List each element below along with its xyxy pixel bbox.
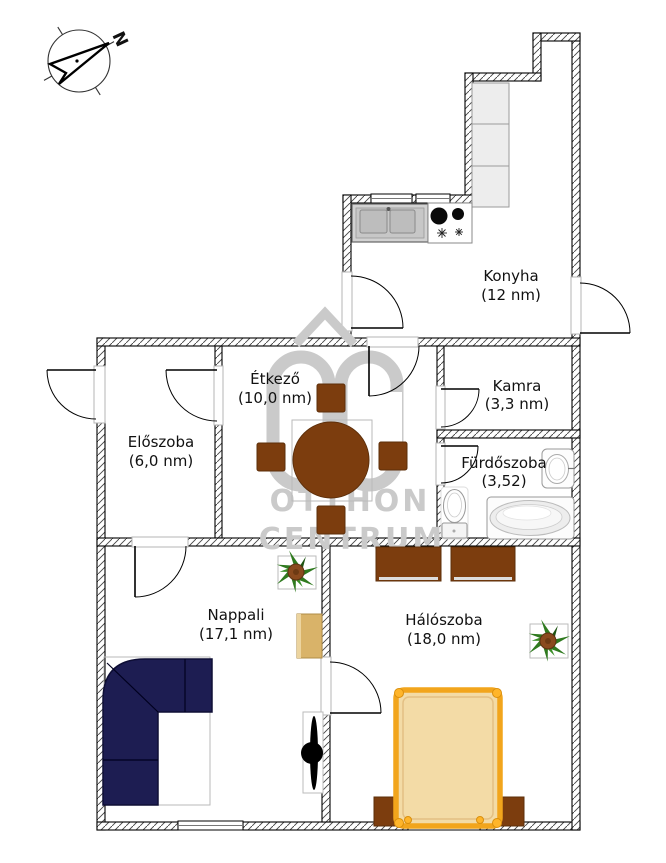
sink-basin <box>390 210 415 233</box>
wall <box>417 338 580 346</box>
wardrobe <box>451 547 515 581</box>
kitchen-side-door <box>351 276 403 328</box>
wall <box>97 338 368 346</box>
wardrobe-detail <box>379 577 438 580</box>
kitchen-cabinets <box>472 83 509 207</box>
chair <box>379 442 407 470</box>
gas-flame-icon <box>455 228 463 236</box>
hall-living-door <box>135 546 186 597</box>
stove <box>428 203 472 243</box>
wall <box>572 33 580 278</box>
plant <box>274 550 318 593</box>
label-etkezo: Étkező <box>250 369 300 388</box>
label-furdoszoba: Fürdőszoba <box>461 454 547 472</box>
entrance-door <box>47 370 96 419</box>
north-arrow-icon <box>50 43 109 84</box>
kitchen-sink <box>352 204 428 242</box>
chair <box>257 443 285 471</box>
bathroom-sink <box>542 449 575 488</box>
chair <box>317 384 345 412</box>
corner-sofa <box>103 659 212 805</box>
sideboard <box>297 614 322 658</box>
wall <box>322 546 330 658</box>
pantry-door <box>441 389 479 427</box>
label-furdoszoba-area: (3,52) <box>481 472 526 490</box>
wall <box>343 195 351 273</box>
label-nappali: Nappali <box>208 606 265 624</box>
label-kamra-area: (3,3 nm) <box>485 395 549 413</box>
door-frame <box>214 366 223 425</box>
compass: N <box>44 27 132 95</box>
wall <box>215 424 222 538</box>
wall <box>97 538 133 546</box>
kitchen-furniture <box>352 83 509 243</box>
plant <box>526 619 570 662</box>
cabinet <box>472 124 509 166</box>
door-frame <box>367 337 418 347</box>
wall <box>412 195 416 203</box>
door-frame <box>132 537 188 547</box>
burner-icon <box>452 208 464 220</box>
door-frame <box>321 657 331 715</box>
door-frame <box>94 366 105 423</box>
toilet <box>441 487 468 539</box>
door-frame <box>342 272 352 331</box>
living-room-furniture <box>103 550 323 805</box>
wall <box>215 346 222 367</box>
compass-north-letter: N <box>107 29 131 50</box>
door-frame <box>571 277 581 334</box>
hall-dining-door <box>166 370 217 421</box>
wardrobe <box>376 547 441 581</box>
window <box>416 194 450 203</box>
burner-icon <box>431 208 448 225</box>
cabinet <box>472 83 509 124</box>
floor-plan-canvas: OTTHON CENTRUM <box>0 0 666 863</box>
wall <box>437 430 580 438</box>
label-kamra: Kamra <box>493 377 542 395</box>
bathtub <box>487 497 574 539</box>
cabinet <box>472 166 509 207</box>
logo-letter-c-gap <box>384 392 402 448</box>
bedroom-furniture <box>374 547 570 828</box>
wardrobe-detail <box>454 577 512 580</box>
label-konyha-area: (12 nm) <box>481 286 541 304</box>
door-frame <box>436 443 445 485</box>
label-konyha: Konyha <box>483 267 538 285</box>
sink-basin <box>360 210 387 233</box>
wall <box>437 346 444 387</box>
wall <box>97 822 178 830</box>
label-nappali-area: (17,1 nm) <box>199 625 273 643</box>
window <box>371 194 412 203</box>
label-haloszoba: Hálószoba <box>405 611 482 629</box>
tv <box>301 712 323 793</box>
kitchen-exterior-door <box>580 283 630 333</box>
chair <box>317 506 345 534</box>
wall <box>572 333 580 830</box>
gas-flame-icon <box>437 228 447 238</box>
bedroom-door <box>330 662 381 713</box>
wall <box>465 73 541 81</box>
dining-table <box>293 422 369 498</box>
label-haloszoba-area: (18,0 nm) <box>407 630 481 648</box>
window <box>178 821 243 830</box>
faucet-icon <box>387 207 391 211</box>
label-eloszoba: Előszoba <box>128 433 194 451</box>
label-etkezo-area: (10,0 nm) <box>238 389 312 407</box>
door-frame <box>436 386 445 429</box>
bed <box>395 689 502 828</box>
label-eloszoba-area: (6,0 nm) <box>129 452 193 470</box>
wall <box>450 195 473 203</box>
floor-plan: OTTHON CENTRUM <box>0 0 666 863</box>
